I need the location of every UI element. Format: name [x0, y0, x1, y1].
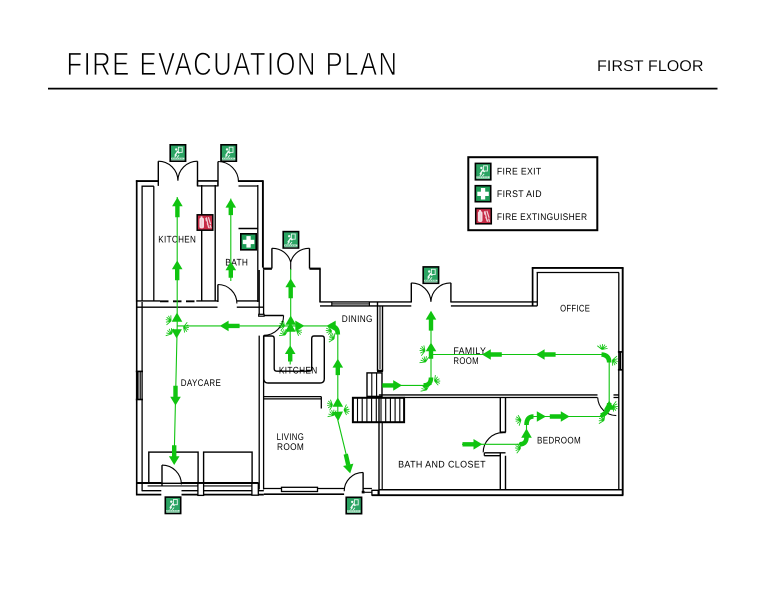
- svg-text:FIRE EXIT: FIRE EXIT: [497, 167, 542, 178]
- svg-text:FIRE EXTINGUISHER: FIRE EXTINGUISHER: [497, 212, 588, 223]
- svg-text:OFFICE: OFFICE: [560, 303, 590, 314]
- svg-text:KITCHEN: KITCHEN: [279, 366, 318, 377]
- svg-text:BEDROOM: BEDROOM: [537, 435, 581, 446]
- svg-text:ROOM: ROOM: [277, 442, 304, 453]
- svg-text:FIRST AID: FIRST AID: [497, 189, 542, 200]
- svg-text:BATH AND CLOSET: BATH AND CLOSET: [398, 460, 486, 471]
- svg-text:DAYCARE: DAYCARE: [181, 378, 221, 389]
- svg-text:FIRST FLOOR: FIRST FLOOR: [597, 58, 704, 75]
- svg-text:DINING: DINING: [342, 314, 373, 325]
- svg-text:ROOM: ROOM: [453, 356, 479, 367]
- svg-text:FIRE EVACUATION PLAN: FIRE EVACUATION PLAN: [67, 46, 399, 82]
